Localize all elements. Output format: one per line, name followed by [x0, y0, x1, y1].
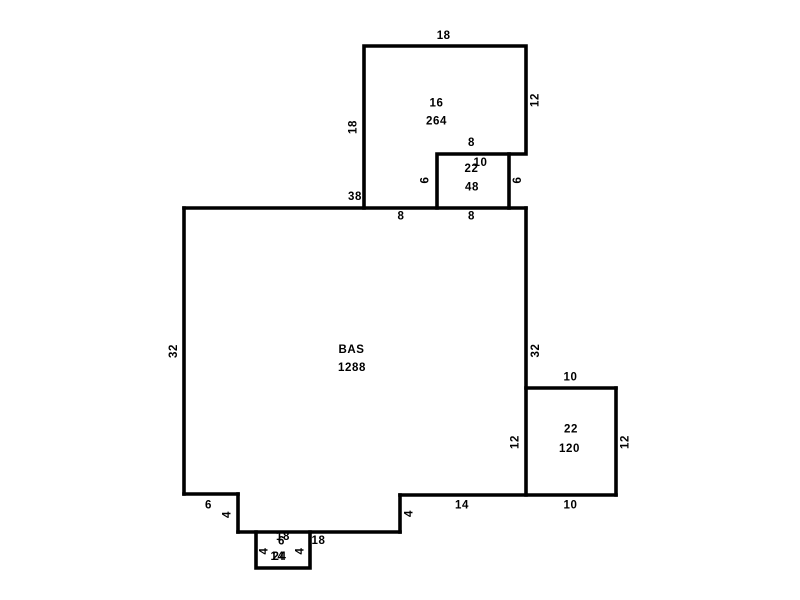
svg-text:4: 4: [404, 510, 416, 517]
svg-text:1288: 1288: [338, 362, 366, 374]
svg-text:12: 12: [510, 435, 522, 449]
svg-text:6: 6: [205, 500, 212, 512]
svg-text:120: 120: [559, 443, 580, 455]
svg-text:18: 18: [312, 535, 326, 547]
svg-text:22: 22: [564, 424, 578, 436]
svg-text:12: 12: [620, 435, 632, 449]
svg-text:16: 16: [430, 98, 444, 110]
svg-text:10: 10: [564, 372, 578, 384]
svg-text:8: 8: [398, 211, 405, 223]
svg-text:32: 32: [168, 344, 180, 358]
svg-text:14: 14: [271, 551, 285, 563]
svg-text:264: 264: [426, 116, 447, 128]
svg-text:6: 6: [278, 536, 285, 548]
svg-text:10: 10: [564, 500, 578, 512]
svg-text:22: 22: [465, 163, 479, 175]
svg-text:4: 4: [295, 548, 307, 555]
svg-text:48: 48: [465, 182, 479, 194]
svg-text:38: 38: [348, 191, 362, 203]
svg-text:BAS: BAS: [338, 344, 364, 356]
svg-text:18: 18: [348, 120, 360, 134]
svg-text:8: 8: [468, 137, 475, 149]
svg-text:12: 12: [530, 93, 542, 107]
svg-text:6: 6: [420, 177, 432, 184]
svg-text:8: 8: [468, 211, 475, 223]
svg-text:4: 4: [222, 511, 234, 518]
svg-text:6: 6: [512, 177, 524, 184]
svg-text:32: 32: [530, 344, 542, 358]
svg-text:4: 4: [259, 548, 271, 555]
svg-text:18: 18: [437, 30, 451, 42]
svg-text:14: 14: [455, 500, 469, 512]
